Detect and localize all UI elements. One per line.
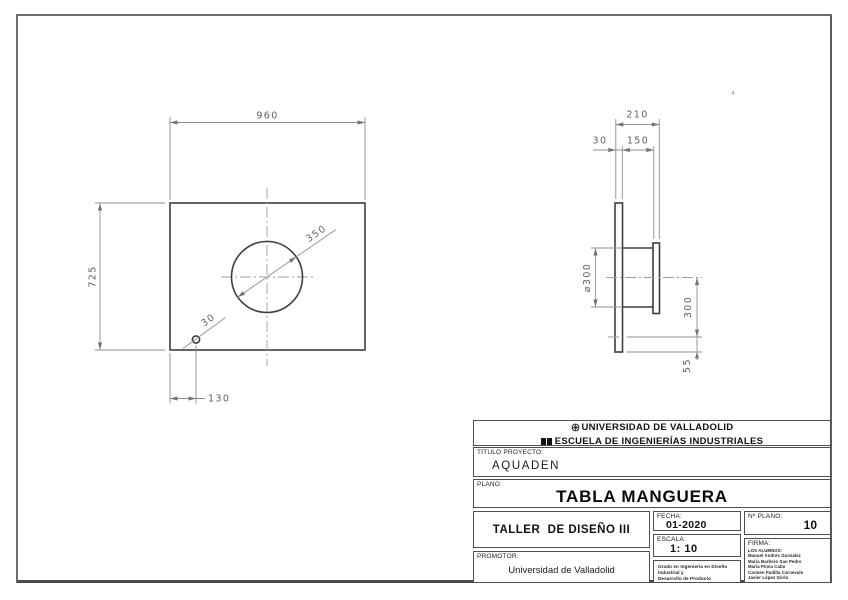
promoter-value: Universidad de Valladolid (474, 565, 649, 576)
project-title-cell: TITULO PROYECTO: AQUADEN (473, 447, 831, 477)
signature-cell: FIRMA: LOS ALUMNOS: Manuel Andrés Gonzál… (744, 538, 831, 583)
technical-drawing: 960 725 350 30 (0, 0, 848, 600)
dim-hole-offset-label: 130 (208, 394, 230, 405)
date-value: 01-2020 (666, 519, 707, 531)
dim-hole-label: 30 (199, 312, 218, 330)
degree-line1: Grado en Ingeniería en Diseño Industrial… (658, 564, 738, 576)
sheet-number-value: 10 (804, 518, 817, 532)
flange-outline (653, 243, 660, 314)
scale-label: ESCALA: (657, 536, 686, 543)
stray-mark: 4 (731, 90, 735, 97)
scale-cell: ESCALA: 1: 10 (653, 534, 741, 557)
drawing-name-cell: PLANO: TABLA MANGUERA (473, 479, 831, 508)
date-cell: FECHA: 01-2020 (653, 511, 741, 531)
school-name: ESCUELA DE INGENIERÍAS INDUSTRIALES (555, 436, 764, 447)
dim-cylinder-length-label: 150 (627, 136, 649, 147)
promoter-cell: PROMOTOR: Universidad de Valladolid (473, 551, 650, 583)
dim-hole-to-edge-label: 55 (682, 358, 693, 373)
dim-circle-label: 350 (304, 223, 329, 245)
promoter-label: PROMOTOR: (477, 553, 519, 560)
dim-center-to-hole-label: 300 (683, 296, 694, 318)
course-value: TALLER DE DISEÑO III (474, 524, 649, 536)
dim-total-depth-label: 210 (626, 110, 648, 121)
drawing-sheet: 960 725 350 30 (0, 0, 848, 600)
signature-label: FIRMA: (748, 540, 830, 547)
dim-height-label: 725 (88, 265, 99, 287)
university-line: UNIVERSIDAD DE VALLADOLID (474, 422, 830, 436)
front-view: 960 725 350 30 (88, 111, 366, 405)
sheet-number-cell: Nº PLANO: 10 (744, 511, 831, 535)
dim-plate-thickness-label: 30 (593, 136, 608, 147)
student-name: Javier López Girón (748, 575, 830, 580)
drawing-name-value: TABLA MANGUERA (474, 487, 810, 507)
project-title-value: AQUADEN (492, 460, 560, 472)
course-cell: TALLER DE DISEÑO III (473, 511, 650, 548)
dim-cylinder-diameter-label: ⌀300 (582, 263, 593, 292)
project-title-label: TITULO PROYECTO: (477, 449, 543, 456)
degree-line2: Desarrollo de Producto (658, 576, 738, 582)
uva-crest-icon (571, 423, 580, 436)
dim-width-label: 960 (256, 111, 278, 122)
school-logo-icon (541, 438, 552, 445)
titleblock-header: UNIVERSIDAD DE VALLADOLID ESCUELA DE ING… (473, 420, 831, 446)
side-view: 210 30 150 ⌀300 (582, 110, 702, 373)
degree-cell: Grado en Ingeniería en Diseño Industrial… (653, 560, 741, 583)
university-name: UNIVERSIDAD DE VALLADOLID (582, 422, 734, 433)
sheet-number-label: Nº PLANO: (748, 513, 783, 520)
scale-value: 1: 10 (670, 543, 698, 555)
